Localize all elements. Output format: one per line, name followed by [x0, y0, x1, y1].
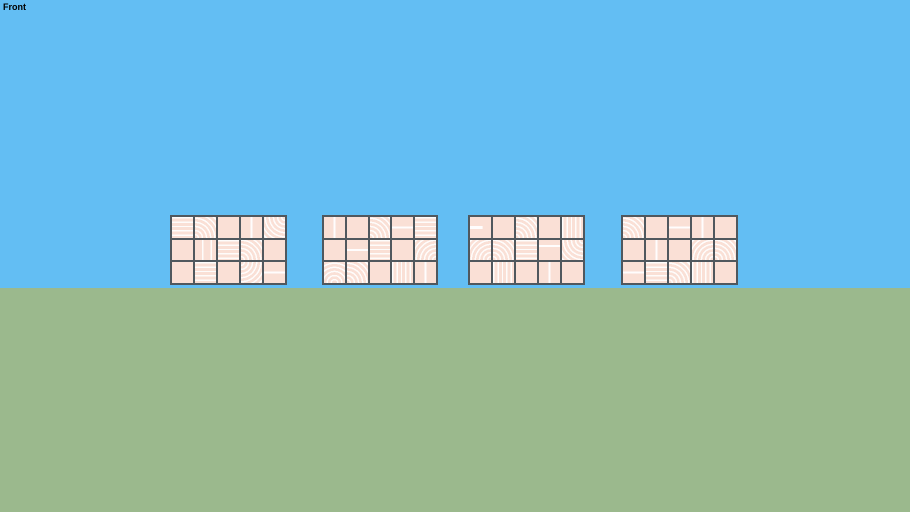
tile-arc-tr [562, 240, 583, 261]
tile-hstripes [370, 240, 391, 261]
panel-4[interactable] [621, 215, 738, 285]
tile-plain [493, 217, 514, 238]
tile-arc-bc [324, 262, 345, 283]
tile-plain [172, 240, 193, 261]
tile-arc-br [692, 240, 713, 261]
panel-2[interactable] [322, 215, 438, 285]
tile-arc-bl [715, 240, 736, 261]
tile-hstripes [172, 217, 193, 238]
tile-arc-tl [241, 262, 262, 283]
tile-plain [264, 240, 285, 261]
tile-plain [218, 217, 239, 238]
tile-hline [347, 240, 368, 261]
tile-hstripes [218, 240, 239, 261]
tile-plain [669, 240, 690, 261]
tile-vstripes [493, 262, 514, 283]
tile-plain [392, 240, 413, 261]
tile-hline [669, 217, 690, 238]
ground-plane [0, 288, 910, 512]
tile-vline [241, 217, 262, 238]
tile-plain [324, 240, 345, 261]
3d-viewport[interactable]: Front [0, 0, 910, 512]
tile-plain [218, 262, 239, 283]
tile-hline [392, 217, 413, 238]
tile-vstripes [692, 262, 713, 283]
tile-plain [715, 217, 736, 238]
tile-hline [264, 262, 285, 283]
tile-plain [562, 262, 583, 283]
tile-arc-bl [669, 262, 690, 283]
tile-arc-bl [347, 262, 368, 283]
panel-1[interactable] [170, 215, 287, 285]
tile-plain [715, 262, 736, 283]
tile-arc-bl [516, 217, 537, 238]
tile-vlines2 [195, 240, 216, 261]
tile-arc-bl [241, 240, 262, 261]
tile-hstripes [415, 217, 436, 238]
tile-plain [539, 217, 560, 238]
tile-hline-top [539, 240, 560, 261]
tile-hline-left [470, 217, 491, 238]
tile-arc-tr [264, 217, 285, 238]
tile-hstripes [516, 240, 537, 261]
tile-hstripes [646, 262, 667, 283]
tile-vline [415, 262, 436, 283]
tile-plain [470, 262, 491, 283]
tile-vline [692, 217, 713, 238]
tile-plain [172, 262, 193, 283]
tile-arc-bl [370, 217, 391, 238]
tile-arc-bl [195, 217, 216, 238]
tile-plain [516, 262, 537, 283]
tile-vline [539, 262, 560, 283]
tile-plain [370, 262, 391, 283]
panel-3[interactable] [468, 215, 585, 285]
view-orientation-label: Front [3, 2, 26, 12]
tile-arc-bl [493, 240, 514, 261]
tile-vline [324, 217, 345, 238]
tile-vstripes [392, 262, 413, 283]
tile-arc-br [415, 240, 436, 261]
tile-hline [623, 262, 644, 283]
tile-vline [646, 240, 667, 261]
tile-arc-br [470, 240, 491, 261]
tile-arc-bl [623, 217, 644, 238]
tile-plain [623, 240, 644, 261]
tile-hstripes [195, 262, 216, 283]
sky-background [0, 0, 910, 288]
tile-plain [347, 217, 368, 238]
tile-plain [646, 217, 667, 238]
tile-vstripes [562, 217, 583, 238]
